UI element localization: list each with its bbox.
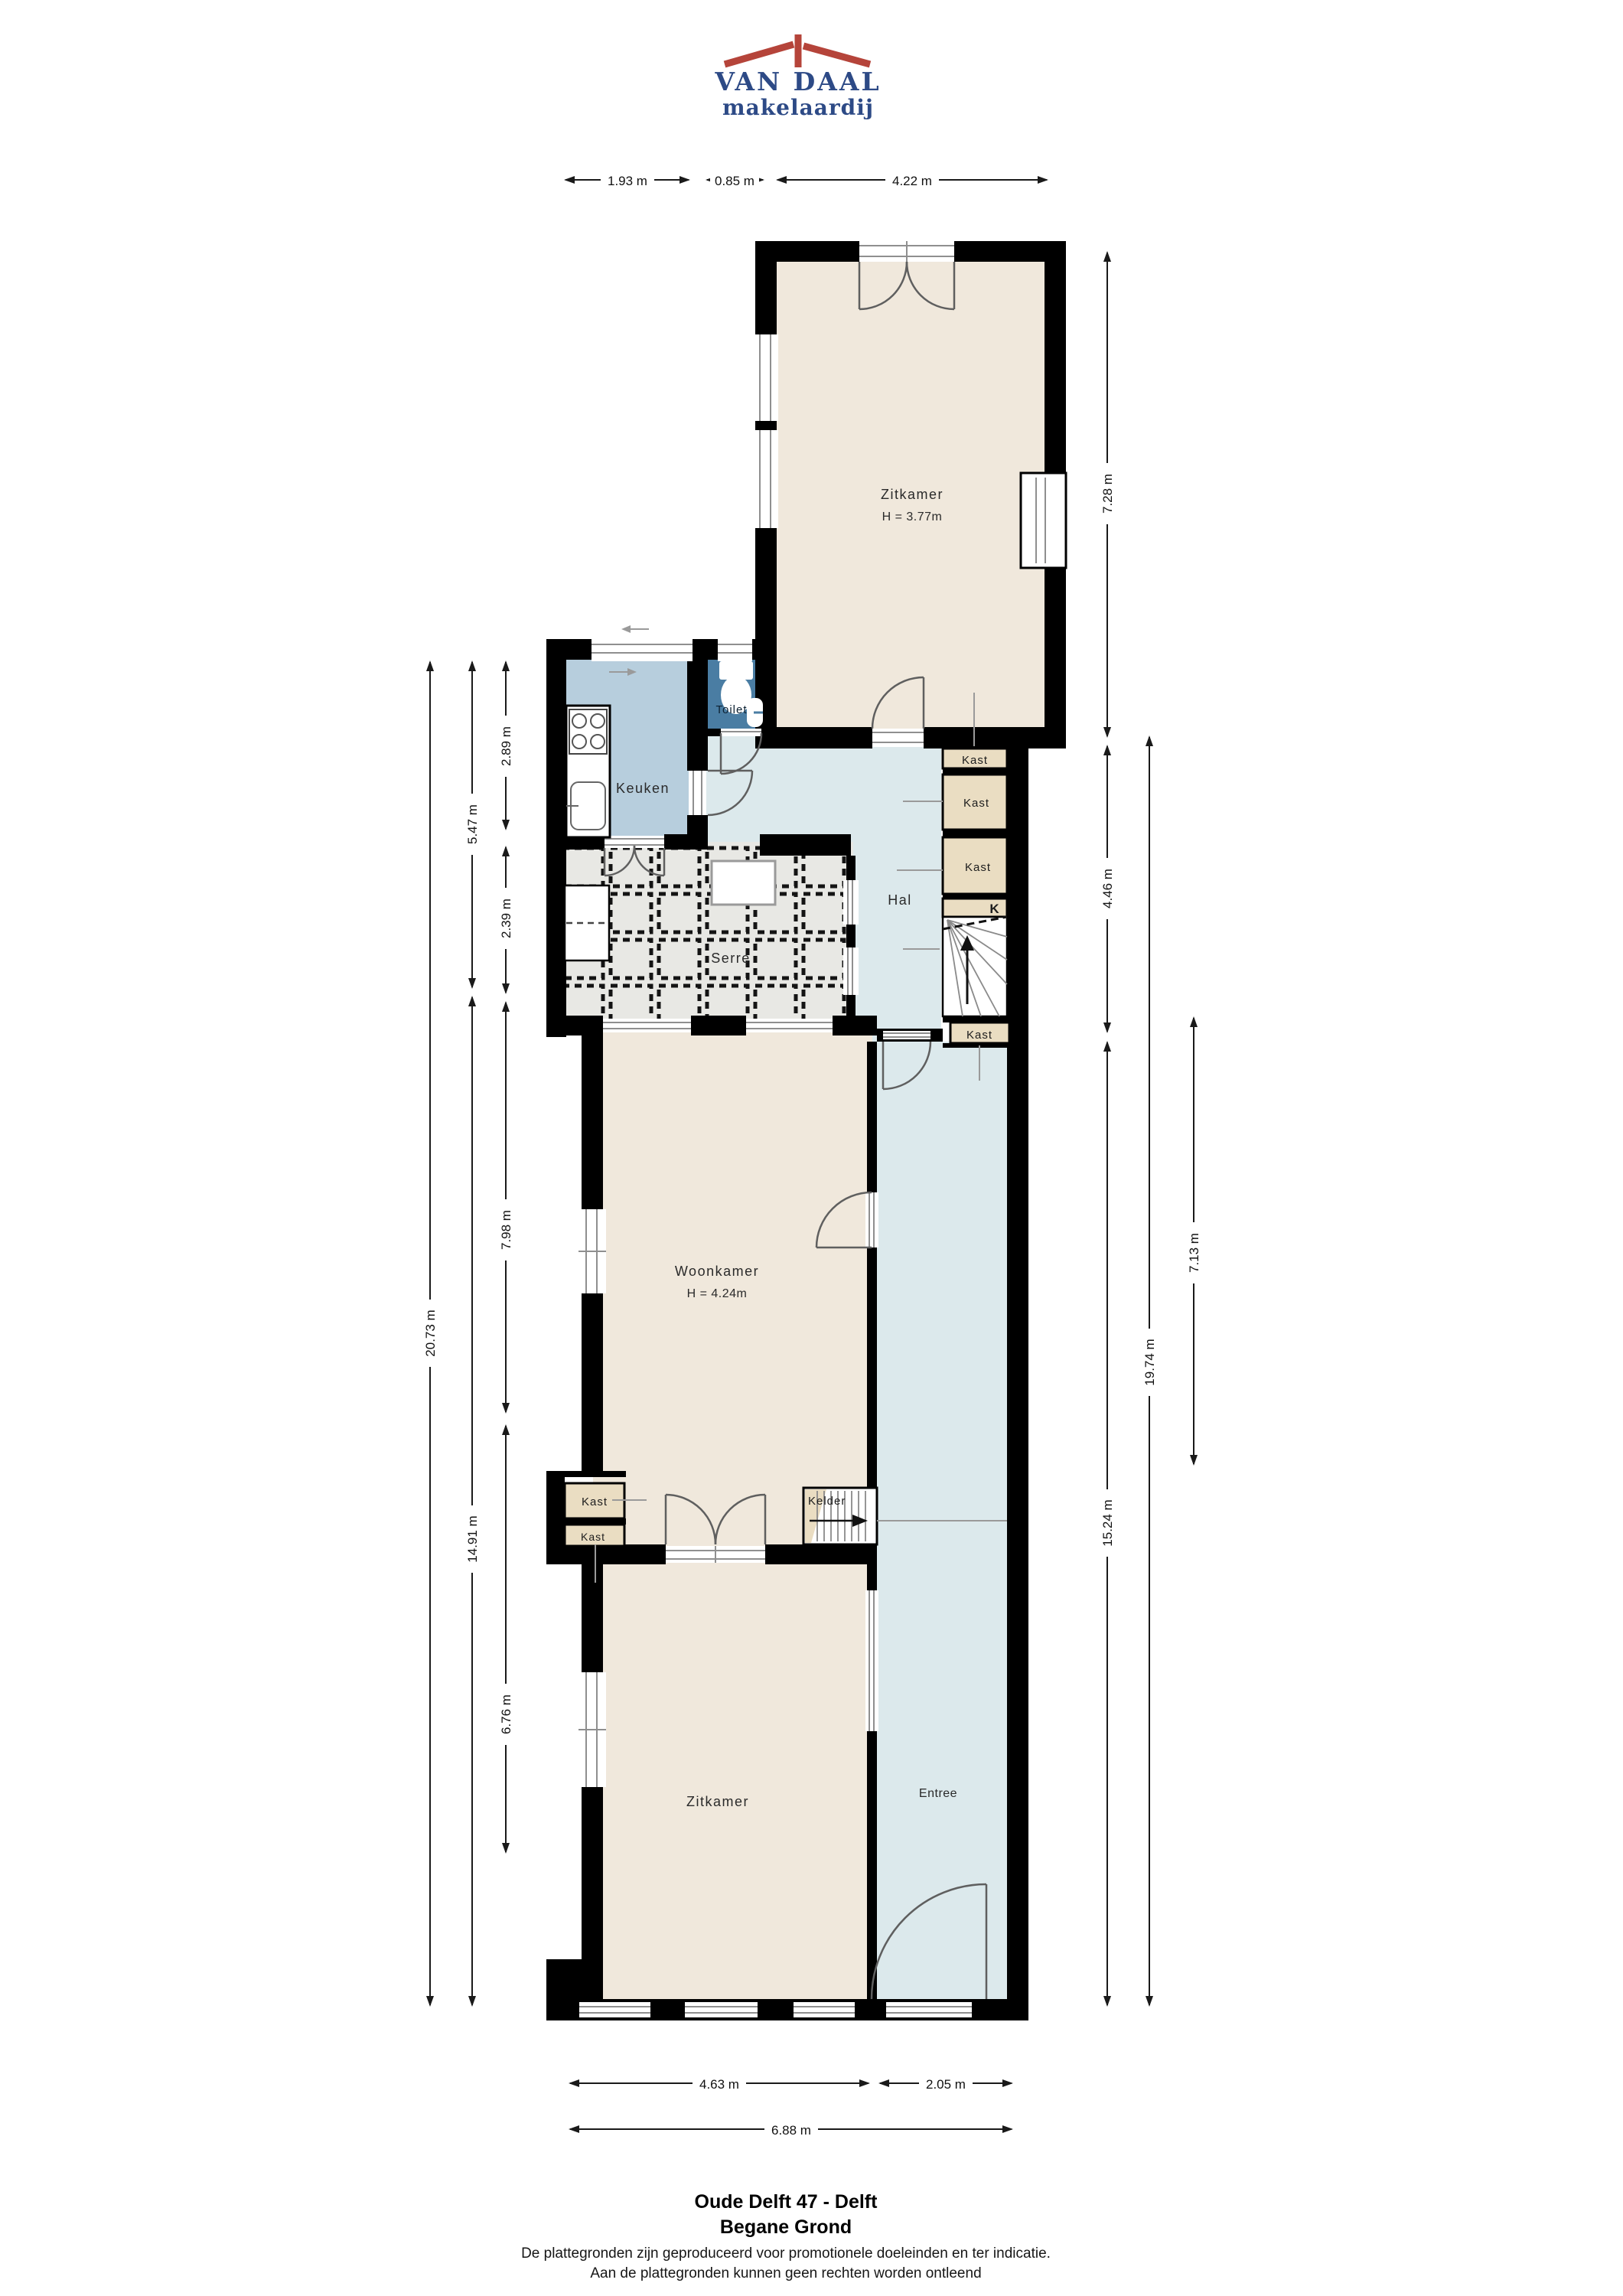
window-zitkamer-top-left-1 (754, 334, 778, 421)
window-facade-entree (886, 2002, 972, 2017)
label-serre: Serre (711, 951, 751, 966)
footer-disclaimer-2: Aan de plattegronden kunnen geen rechten… (590, 2265, 981, 2281)
svg-text:2.05 m: 2.05 m (926, 2077, 966, 2092)
dim-bottom-1: 4.63 m (570, 2073, 869, 2094)
svg-text:5.47 m: 5.47 m (465, 804, 480, 844)
floorplan-page: VAN DAAL makelaardij (0, 0, 1623, 2296)
dim-right-1524: 15.24 m (1097, 1042, 1118, 2005)
window-zitkamer-top-left-2 (754, 430, 778, 528)
door-gap-woonkamer-zitkamer (666, 1546, 765, 1563)
svg-text:4.22 m: 4.22 m (892, 174, 932, 188)
brand-logo: VAN DAAL makelaardij (714, 34, 881, 120)
svg-text:4.46 m: 4.46 m (1100, 869, 1115, 908)
dim-left-289: 2.89 m (495, 662, 517, 829)
svg-text:14.91 m: 14.91 m (465, 1515, 480, 1562)
door-gap-toilet (721, 729, 761, 736)
serre-skylight (712, 861, 775, 905)
dim-bottom-3: 6.88 m (570, 2118, 1012, 2140)
svg-text:2.89 m: 2.89 m (499, 726, 513, 766)
svg-text:7.98 m: 7.98 m (499, 1210, 513, 1250)
door-gap-zitkamer-hal (872, 729, 924, 747)
stove-icon (569, 709, 607, 754)
room-fills (555, 253, 1056, 2020)
dim-left-1491: 14.91 m (461, 997, 483, 2005)
footer-floor: Begane Grond (720, 2216, 852, 2238)
label-zitkamer-top: Zitkamer (881, 487, 943, 502)
label-woonkamer: Woonkamer (675, 1264, 759, 1279)
svg-text:4.63 m: 4.63 m (699, 2077, 739, 2092)
label-k: K (989, 902, 999, 916)
window-zitkamer-bottom-left (578, 1672, 606, 1787)
label-kast-6: Kast (581, 1531, 605, 1543)
window-woonkamer-left (578, 1209, 606, 1293)
label-kast-1: Kast (962, 754, 988, 767)
dim-left-547: 5.47 m (461, 662, 483, 987)
brand-tagline: makelaardij (722, 95, 874, 120)
stairs-main (943, 917, 1007, 1016)
dim-top-2: 0.85 m (707, 169, 763, 191)
footer-address: Oude Delft 47 - Delft (695, 2191, 878, 2213)
label-zitkamer-bottom: Zitkamer (686, 1794, 749, 1809)
label-toilet: Toilet (715, 703, 747, 716)
french-door-top (859, 241, 954, 262)
footer-disclaimer-1: De plattegronden zijn geproduceerd voor … (521, 2245, 1051, 2262)
svg-text:2.39 m: 2.39 m (499, 899, 513, 938)
label-entree: Entree (919, 1787, 957, 1800)
window-corridor-top (883, 1031, 930, 1039)
dim-right-1974: 19.74 m (1139, 737, 1160, 2005)
dim-left-798: 7.98 m (495, 1003, 517, 1412)
svg-text:7.28 m: 7.28 m (1100, 474, 1115, 514)
svg-text:6.88 m: 6.88 m (771, 2123, 811, 2138)
brand-name: VAN DAAL (714, 67, 881, 96)
room-zitkamer-bottom-fill (593, 1554, 872, 2013)
dim-right-446: 4.46 m (1097, 746, 1118, 1032)
svg-text:19.74 m: 19.74 m (1142, 1339, 1157, 1385)
label-woonkamer-height: H = 4.24m (687, 1287, 748, 1300)
dim-right-713: 7.13 m (1183, 1018, 1204, 1464)
label-hal: Hal (888, 892, 912, 908)
footer: Oude Delft 47 - Delft Begane Grond De pl… (521, 2191, 1051, 2281)
sink-icon (566, 782, 605, 830)
svg-text:6.76 m: 6.76 m (499, 1694, 513, 1734)
label-kast-2: Kast (963, 797, 989, 810)
toilet-sink-icon (747, 698, 763, 727)
svg-text:1.93 m: 1.93 m (608, 174, 647, 188)
svg-text:0.85 m: 0.85 m (715, 174, 754, 188)
window-facade-3 (794, 2002, 855, 2017)
window-facade-1 (579, 2002, 650, 2017)
dim-right-728: 7.28 m (1097, 253, 1118, 736)
door-gap-woonkamer-entree (865, 1192, 878, 1247)
label-kelder: Kelder (808, 1495, 846, 1508)
kitchen-fixtures (566, 706, 610, 837)
window-entree-partition (865, 1590, 878, 1731)
svg-text:20.73 m: 20.73 m (423, 1309, 438, 1356)
label-kast-5: Kast (582, 1495, 608, 1508)
dim-top-3: 4.22 m (777, 169, 1047, 191)
window-facade-2 (685, 2002, 758, 2017)
svg-text:15.24 m: 15.24 m (1100, 1499, 1115, 1546)
label-zitkamer-top-height: H = 3.77m (882, 510, 943, 523)
label-keuken: Keuken (616, 781, 670, 796)
dim-top-1: 1.93 m (565, 169, 689, 191)
dim-bottom-2: 2.05 m (880, 2073, 1012, 2094)
window-toilet-top (718, 638, 752, 661)
room-entree-fill (867, 1042, 1025, 2020)
dim-left-676: 6.76 m (495, 1426, 517, 1852)
dim-left-2073: 20.73 m (419, 662, 441, 2005)
label-kast-4: Kast (966, 1029, 992, 1042)
window-zitkamer-top-right (1021, 473, 1066, 568)
label-kast-3: Kast (965, 861, 991, 874)
door-gap-keuken-hal (689, 771, 706, 815)
svg-text:7.13 m: 7.13 m (1187, 1233, 1201, 1273)
dim-left-239: 2.39 m (495, 847, 517, 993)
roof-icon (725, 34, 870, 67)
